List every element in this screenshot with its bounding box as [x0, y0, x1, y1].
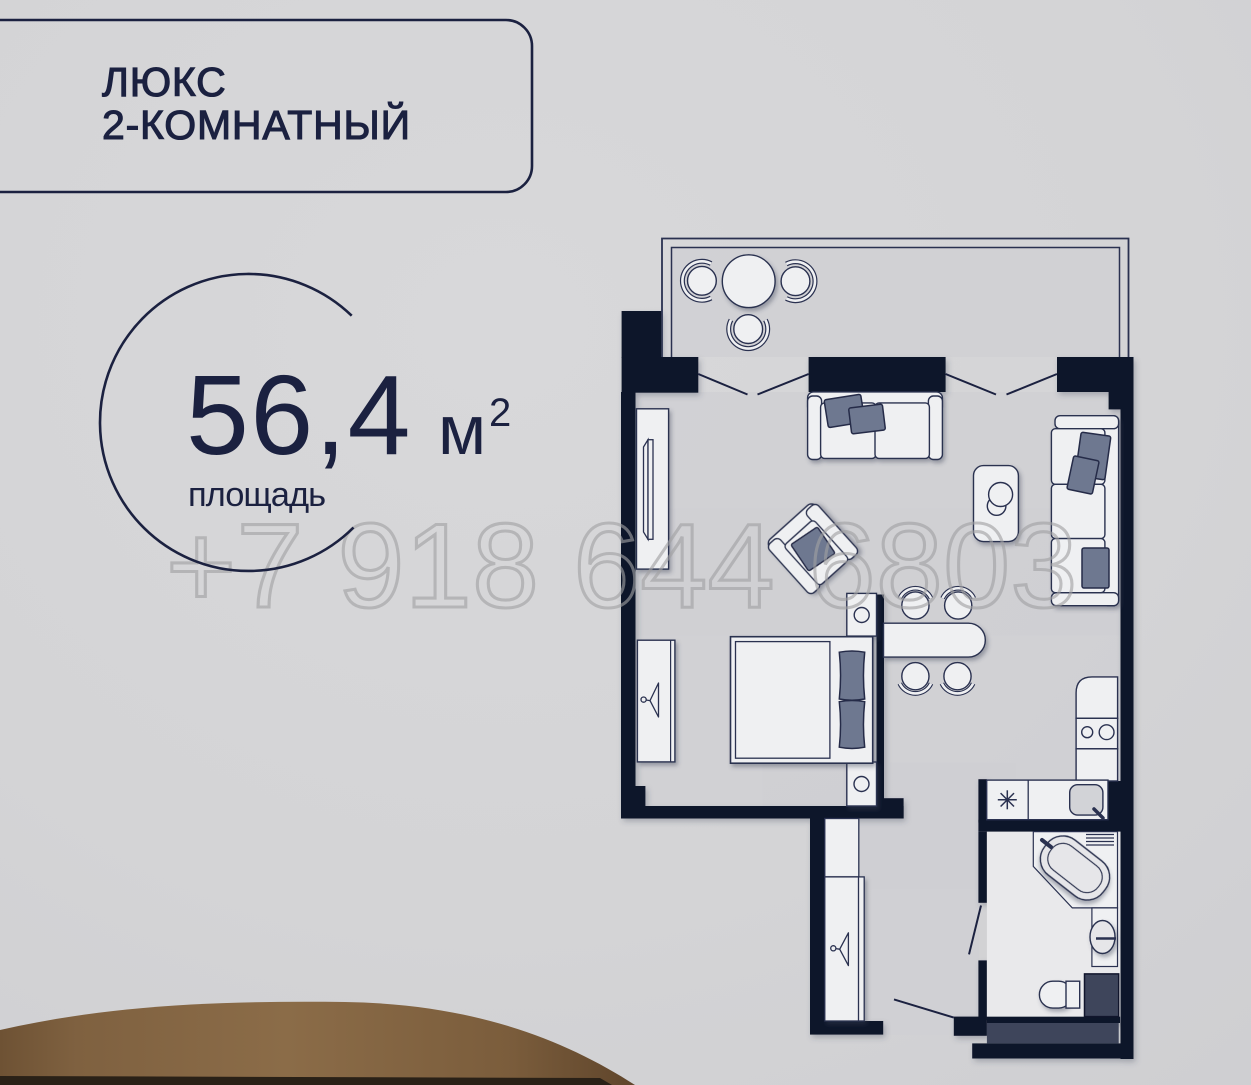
svg-text:+7 918 644 6803: +7 918 644 6803	[166, 499, 1078, 633]
svg-text:2: 2	[489, 391, 511, 435]
svg-text:ЛЮКС: ЛЮКС	[102, 59, 227, 105]
svg-text:56,4: 56,4	[186, 352, 412, 478]
svg-text:площадь: площадь	[188, 476, 325, 514]
svg-text:м: м	[438, 391, 486, 469]
svg-text:2-КОМНАТНЫЙ: 2-КОМНАТНЫЙ	[102, 102, 411, 148]
